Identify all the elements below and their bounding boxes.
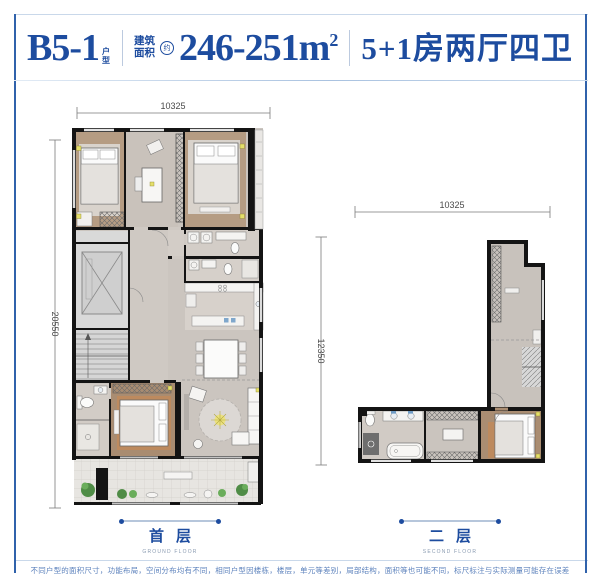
frame-line-top — [14, 14, 588, 15]
bathroom-mid — [185, 257, 263, 283]
area-value: 246-251 — [179, 29, 299, 67]
area-unit-exponent: 2 — [329, 30, 338, 51]
toilet — [231, 243, 239, 254]
label-decor-line — [121, 520, 219, 522]
ground-floor-name-cn: 首层 — [121, 529, 219, 546]
wardrobe — [100, 212, 124, 227]
dimension-height-ground-label: 20550 — [50, 311, 60, 336]
header-divider — [14, 80, 588, 81]
disclaimer-text: 不同户型的面积尺寸，功能布局，空间分布均有不同，相同户型因楼栋，楼层，单元等差别… — [0, 565, 600, 576]
hallway — [129, 229, 168, 382]
dining-table — [204, 340, 238, 378]
bathroom-master — [75, 384, 109, 456]
elevator — [75, 231, 129, 330]
study-room — [125, 131, 178, 228]
cabinet — [248, 462, 259, 482]
shower — [363, 433, 379, 455]
frame-line-right — [585, 14, 587, 573]
second-floor-name-cn: 二层 — [401, 529, 499, 546]
second-floor-drawing — [358, 240, 545, 463]
wardrobe-column — [492, 246, 501, 322]
bedroom-top-right — [184, 131, 246, 228]
stairs — [522, 347, 541, 387]
header-separator — [122, 30, 123, 66]
stairs — [75, 330, 129, 382]
closet-column — [176, 134, 184, 222]
bed — [120, 400, 168, 446]
tv-console — [184, 394, 189, 430]
toilet — [224, 264, 232, 275]
unit-name-group: B5-1 户型 — [27, 29, 111, 67]
shower — [242, 260, 258, 278]
frame-line-bottom — [14, 560, 588, 561]
sofa-chaise — [232, 432, 249, 445]
fridge — [186, 294, 196, 307]
label-decor-line — [401, 520, 499, 522]
unit-type-label: 户型 — [102, 47, 111, 65]
laundry-strip — [168, 229, 263, 257]
floorplan-second: 10325 12350 — [315, 195, 560, 485]
unit-name: B5-1 — [27, 29, 99, 67]
second-floor-label: 二层 SECOND FLOOR — [401, 520, 499, 555]
area-group: 建筑 面积 约 246-251 m 2 — [134, 29, 338, 67]
dimension-width-second-label: 10325 — [439, 200, 464, 210]
second-floor-name-en: SECOND FLOOR — [401, 549, 499, 555]
floorplan-page: B5-1 户型 建筑 面积 约 246-251 m 2 5+1房两厅四卫 — [0, 0, 600, 586]
kitchen — [185, 283, 263, 330]
chair — [135, 177, 142, 191]
kitchen-island — [192, 316, 244, 326]
closet-island — [443, 429, 463, 440]
ground-floor-label: 首层 GROUND FLOOR — [121, 520, 219, 555]
master-bedroom — [111, 383, 175, 456]
layout-description: 5+1房两厅四卫 — [361, 33, 573, 64]
bed — [194, 143, 238, 203]
area-label: 建筑 面积 — [134, 36, 155, 59]
ground-floor-drawing — [72, 128, 263, 505]
frame-line-left — [14, 14, 16, 573]
approx-mark: 约 — [160, 41, 174, 55]
bench — [200, 207, 230, 212]
side-table — [194, 440, 203, 449]
toilet — [81, 398, 94, 408]
header-separator-2 — [349, 30, 350, 66]
double-vanity — [383, 411, 423, 421]
header: B5-1 户型 建筑 面积 约 246-251 m 2 5+1房两厅四卫 — [0, 24, 600, 72]
ground-floor-name-en: GROUND FLOOR — [121, 549, 219, 555]
dimension-height-second-label: 12350 — [316, 338, 326, 363]
ac-platform — [255, 130, 263, 229]
bench — [164, 472, 192, 479]
door-gap — [495, 408, 508, 411]
area-unit: m — [299, 29, 330, 67]
floorplan-ground: 10325 20550 — [40, 95, 280, 520]
area-value-group: 246-251 m 2 — [179, 29, 338, 67]
bed — [81, 148, 118, 204]
bed — [495, 414, 535, 458]
dimension-width-ground-label: 10325 — [160, 101, 185, 111]
bedroom-top-left — [75, 131, 125, 228]
bench — [114, 410, 119, 434]
shower — [77, 424, 99, 450]
wardrobe — [113, 384, 171, 393]
area-label-line2: 面积 — [134, 48, 155, 60]
